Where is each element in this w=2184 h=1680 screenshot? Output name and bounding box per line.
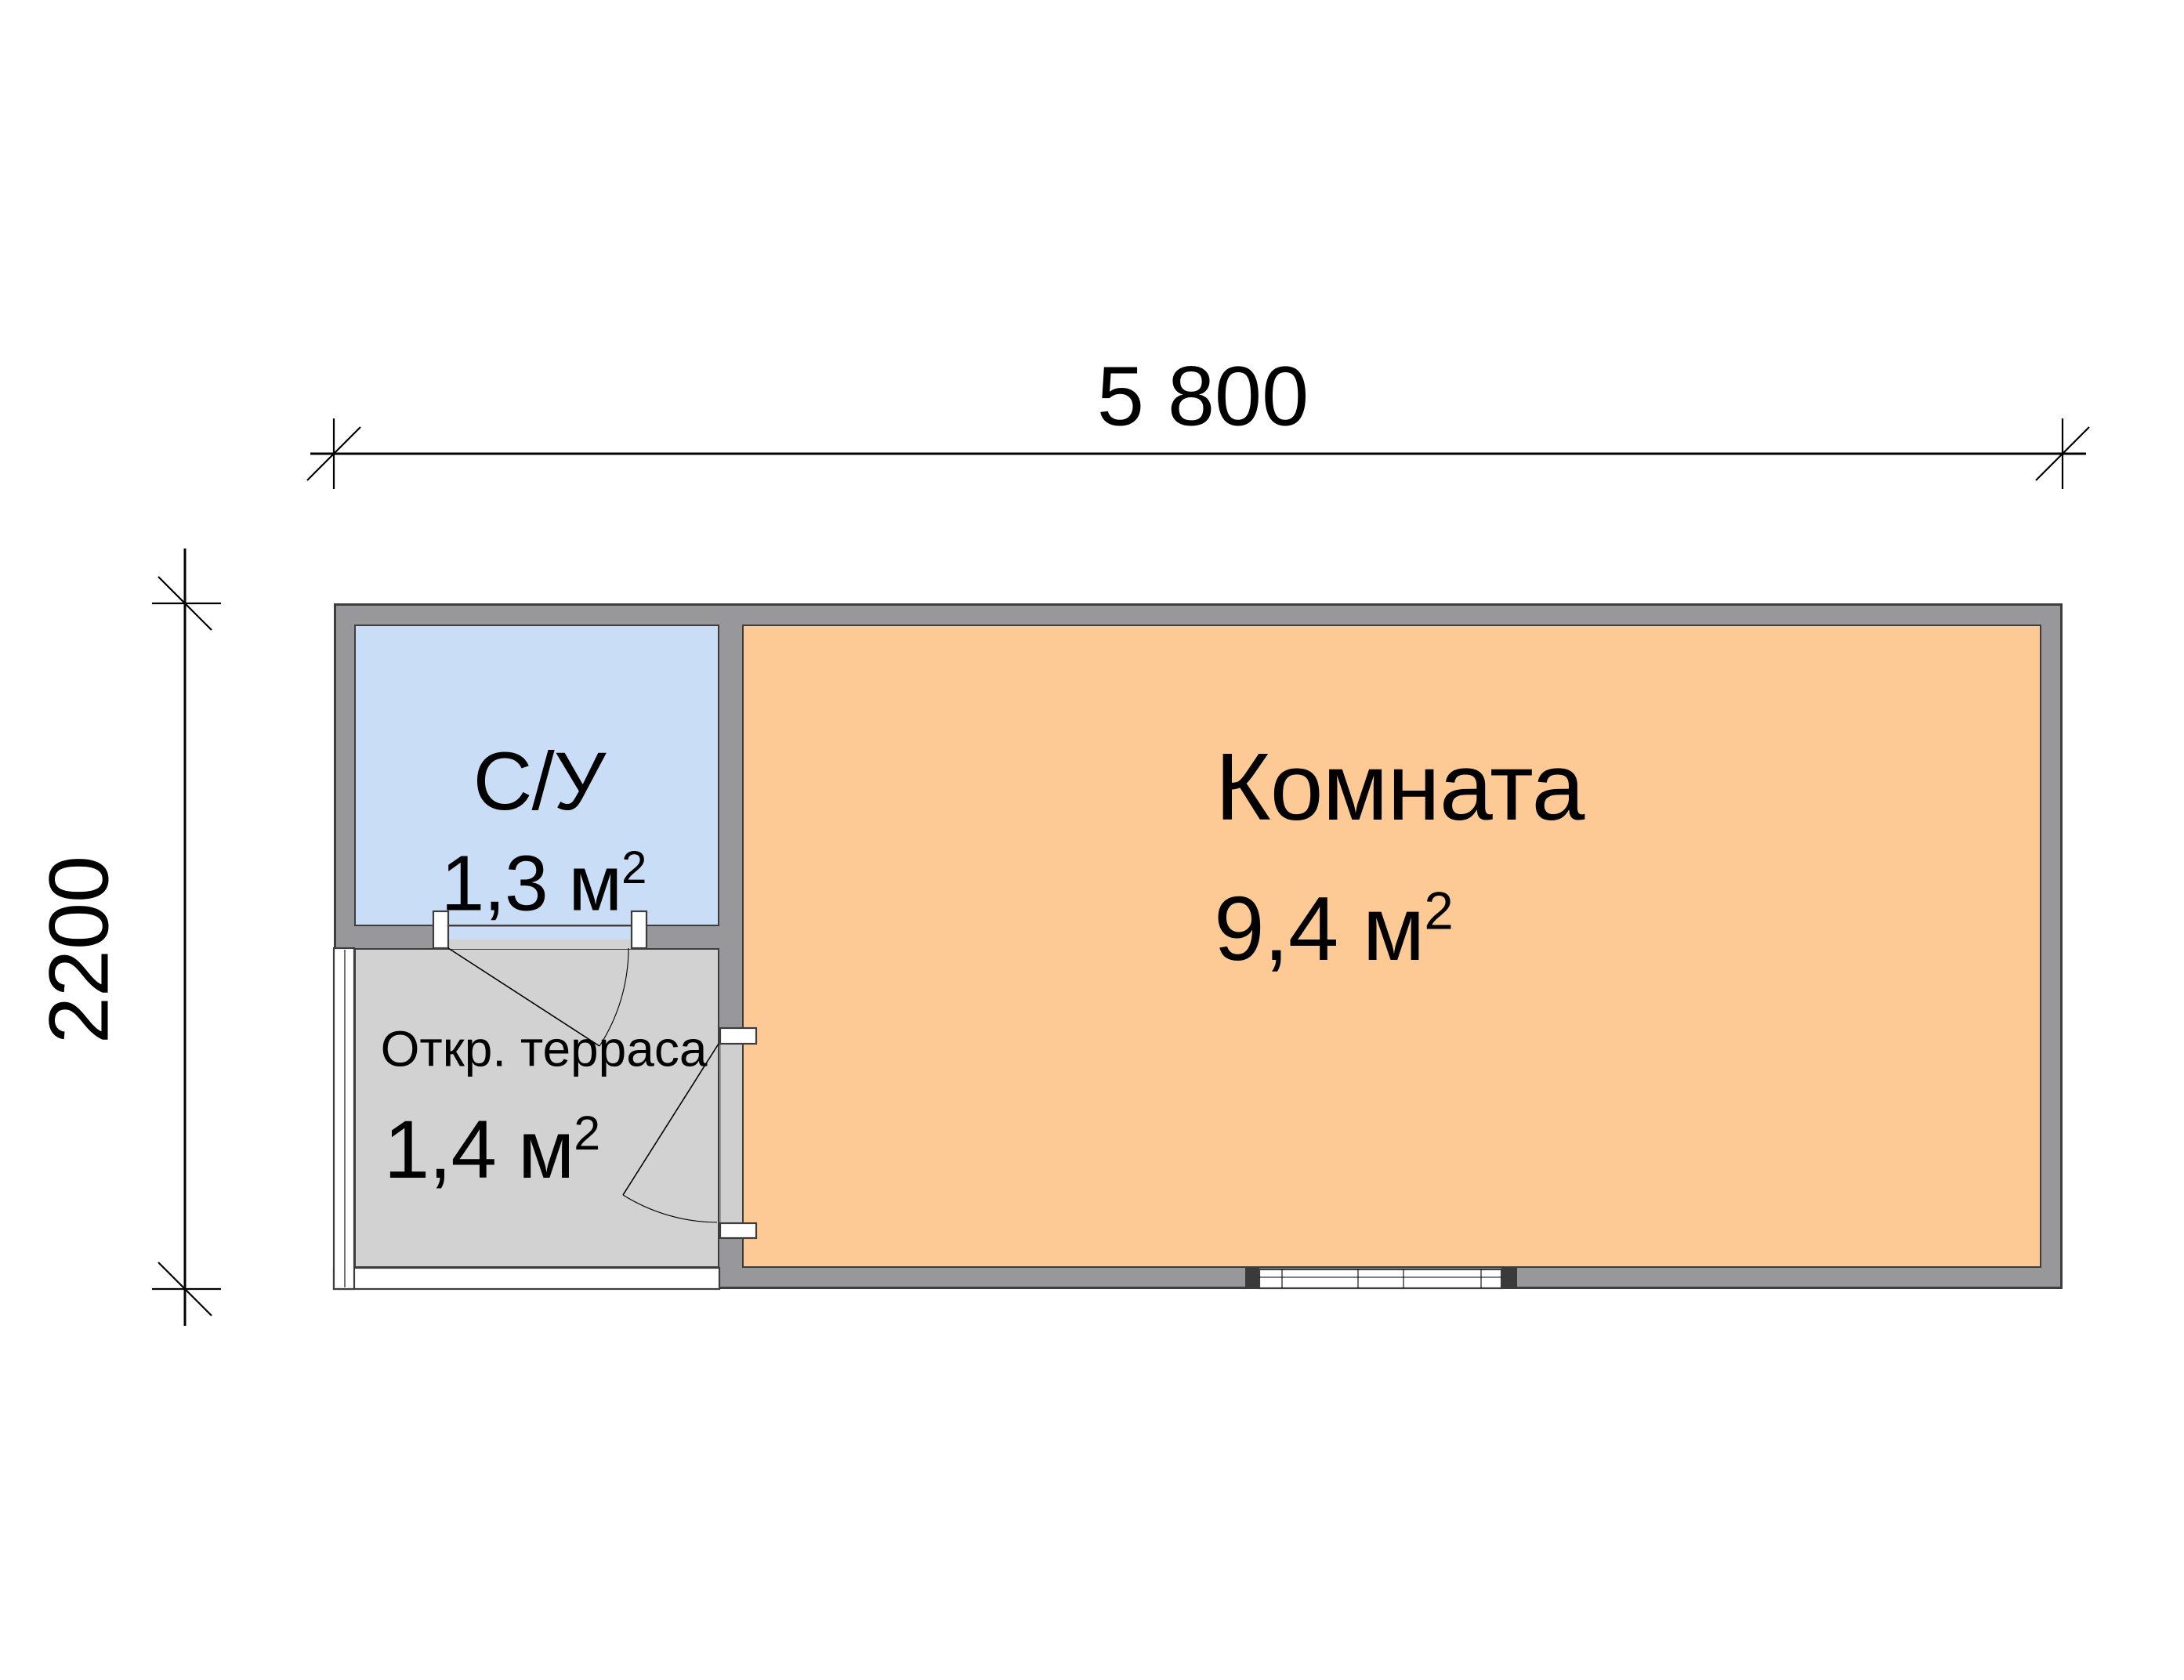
main-room-name-label: Комната	[1215, 737, 1585, 837]
floor-plan-canvas: 5 800 2200 С/У 1,3 м2 Откр. терраса 1,4 …	[0, 0, 2184, 1680]
main-room-area-label: 9,4 м2	[1214, 882, 1454, 977]
bathroom-name-label: С/У	[473, 739, 606, 825]
bathroom-area-label: 1,3 м2	[441, 843, 647, 925]
window	[1245, 1268, 1517, 1289]
dimension-width-label: 5 800	[1097, 351, 1309, 440]
terrace-open-edge-bottom	[334, 1268, 719, 1289]
terrace-open-edge-left	[334, 948, 354, 1289]
plan-linework	[0, 0, 2184, 1680]
bathroom-area-superscript: 2	[621, 842, 647, 893]
main-room-area-superscript: 2	[1424, 882, 1453, 940]
main-room-door-swing-arc	[623, 1195, 717, 1222]
window-end-cap-right	[1501, 1268, 1517, 1289]
dimension-height-label: 2200	[34, 856, 122, 1044]
window-frame	[1259, 1269, 1501, 1288]
bathroom-area-value: 1,3 м	[441, 840, 622, 928]
window-end-cap-left	[1245, 1268, 1259, 1289]
main-room-door-jamb-top	[720, 1028, 756, 1044]
left-dimension	[152, 549, 221, 1326]
terrace-area-value: 1,4 м	[384, 1104, 574, 1196]
main-room-area-value: 9,4 м	[1214, 878, 1424, 979]
main-room-door-jamb-bottom	[720, 1223, 756, 1238]
terrace-area-superscript: 2	[574, 1106, 600, 1160]
terrace-area-label: 1,4 м2	[384, 1107, 600, 1193]
terrace-name-label: Откр. терраса	[381, 1023, 708, 1075]
